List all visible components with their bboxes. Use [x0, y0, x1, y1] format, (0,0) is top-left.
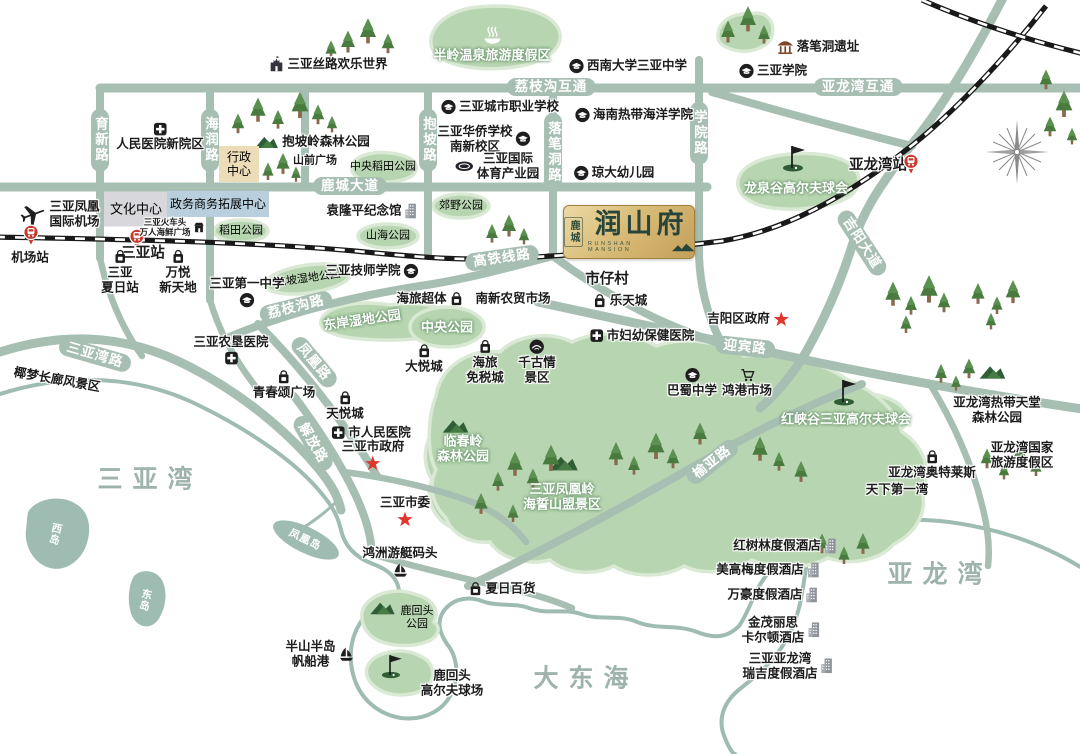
banling-hotspring-resort: 半岭温泉旅游度假区 [433, 25, 550, 62]
xiari-station: 三亚夏日站 [101, 249, 139, 295]
school-icon [684, 368, 699, 383]
intl-sports-industry-park: 三亚国际体育产业园 [455, 151, 540, 181]
building-icon [824, 538, 837, 555]
star-icon [365, 455, 381, 470]
phoenix-ridge-scenic-area: 三亚凤凰岭海誓山盟景区 [523, 482, 601, 513]
airport-station-badge [23, 225, 40, 246]
bag-icon [338, 391, 352, 406]
jiyang-district-gov: 吉阳区政府 [707, 312, 789, 327]
seafood-plaza: 三亚火车头万人海鲜广场 [139, 217, 204, 237]
map-canvas: 育新路海润路抱坡路落笔洞路学院路荔枝沟互通亚龙湾互通鹿城大道高铁线路荔枝沟路凤凰… [0, 0, 1080, 754]
school-icon [516, 132, 531, 147]
logo-subtitle: RUNSHAN MANSION [588, 241, 668, 253]
gov-business-center: 政务商务拓展中心 [167, 191, 269, 217]
building-icon [806, 587, 819, 604]
swu-sanya-middle-school: 西南大学三亚中学 [569, 59, 687, 74]
yemeng-corridor-scenic: 椰梦长廊风景区 [13, 365, 102, 395]
hospital-icon [224, 351, 238, 365]
hotspring-icon [480, 25, 504, 46]
longquangu-golf-club: 龙泉谷高尔夫球会 [744, 180, 848, 195]
linchunling-forest-park: 临春岭森林公园 [437, 434, 489, 465]
duty-free-city: 海旅免税城 [466, 339, 504, 385]
honggang-market: 鸿港市场 [722, 368, 772, 399]
luhuitou-golf-course: 鹿回头高尔夫球场 [421, 668, 484, 698]
hospital-icon [331, 426, 345, 440]
school-icon [575, 108, 590, 123]
labels-layer: 育新路海润路抱坡路落笔洞路学院路荔枝沟互通亚龙湾互通鹿城大道高铁线路荔枝沟路凤凰… [0, 0, 1080, 754]
station-icon [23, 225, 40, 246]
sanya-college: 三亚学院 [739, 64, 807, 79]
road-lizhigou-interchange: 荔枝沟互通 [507, 78, 596, 96]
yuanlongping-memorial: 袁隆平纪念馆 [326, 203, 417, 220]
star-icon [773, 312, 789, 327]
hotel-ritz-carlton: 金茂丽思卡尔顿酒店 [742, 615, 821, 645]
shanhai-park: 山海公园 [366, 230, 410, 243]
paddy-park: 稻田公园 [219, 225, 263, 238]
nanxin-market: 南新农贸市场 [475, 292, 550, 307]
baopoling-forest-park: 抱坡岭森林公园 [282, 135, 370, 150]
yalong-paradise-forest-park: 亚龙湾热带天堂森林公园 [953, 395, 1041, 425]
sail-icon [339, 646, 355, 662]
hongzhou-yacht-marina: 鸿洲游艇码头 [362, 546, 437, 578]
building-icon [405, 203, 418, 220]
road-lucheng-avenue: 鹿城大道 [313, 177, 387, 195]
school-icon [569, 59, 584, 74]
shop-icon [194, 222, 205, 233]
sea-yalong-bay: 亚龙湾 [887, 560, 992, 590]
hotel-mgm: 美高梅度假酒店 [716, 562, 820, 579]
sail-icon [392, 562, 408, 578]
logo-project-name: 润山府 [595, 211, 688, 238]
road-jiefang: 解放路 [290, 413, 335, 473]
shizai-village: 市仔村 [585, 271, 629, 288]
bag-icon [593, 294, 607, 309]
bag-icon [925, 450, 939, 465]
admin-center: 行政中心 [219, 146, 259, 182]
sanya-city-gov: 三亚市政府 [342, 440, 405, 471]
banshan-sailing-port: 半山半岛帆船港 [285, 639, 354, 669]
island-east: 东岛 [137, 587, 154, 612]
pavilion-icon [777, 40, 794, 55]
sea-dadonghai: 大东海 [533, 664, 638, 694]
overseas-chinese-school: 三亚华侨学校南新校区 [437, 124, 530, 154]
stadium-icon [455, 160, 474, 172]
country-park: 郊野公园 [439, 200, 483, 213]
central-paddy-park: 中央稻田公园 [350, 161, 416, 174]
island-phoenix: 凤凰岛 [287, 527, 323, 553]
road-baopo: 抱坡路 [419, 109, 437, 172]
hotel-st-regis: 三亚亚龙湾瑞吉度假酒店 [742, 651, 833, 681]
luhuitou-park: 鹿回头公园 [401, 605, 434, 631]
road-yuya: 榆亚路 [683, 437, 741, 488]
tianxia-first-bay: 天下第一湾 [866, 483, 929, 498]
building-icon [807, 562, 820, 579]
hospital-icon [590, 329, 604, 343]
hotel-mangrove: 红树林度假酒店 [733, 538, 837, 555]
school-icon [404, 264, 419, 279]
tianyue-city: 天悦城 [326, 391, 364, 422]
city-vocational-school: 三亚城市职业学校 [441, 100, 559, 115]
bag-icon [417, 344, 431, 359]
qiongda-kindergarten: 琼大幼儿园 [574, 166, 655, 181]
yalong-outlets: 亚龙湾奥特莱斯 [888, 450, 976, 481]
project-logo-plate: 鹿城 润山府 RUNSHAN MANSION [563, 205, 695, 259]
road-hsr-line: 高铁线路 [464, 244, 540, 272]
silk-road-happy-world: 三亚丝路欢乐世界 [268, 56, 387, 72]
sea-sanya-bay: 三亚湾 [97, 465, 202, 495]
renmin-hospital-new-campus: 人民医院新院区 [116, 122, 204, 152]
yalongwan-station-badge [903, 154, 920, 175]
hailv-supertown: 海旅超体 [396, 292, 463, 307]
bag-icon [277, 370, 291, 385]
airport-station-label: 机场站 [11, 251, 49, 266]
bag-icon [171, 249, 185, 264]
logo-district: 鹿城 [564, 217, 583, 247]
bag-icon [113, 249, 127, 264]
island-west: 西岛 [47, 521, 64, 546]
star-icon [397, 511, 413, 526]
road-yingbin: 迎宾路 [714, 335, 775, 359]
school-icon [574, 166, 589, 181]
school-icon [739, 64, 754, 79]
hotel-marriott: 万豪度假酒店 [727, 587, 818, 604]
xiari-department-store: 夏日百货 [468, 582, 535, 597]
sanya-city-committee: 三亚市委 [380, 496, 430, 527]
school-icon [441, 100, 456, 115]
building-icon [821, 658, 834, 675]
agri-reclamation-hospital: 三亚农垦医院 [193, 335, 268, 365]
school-icon [239, 292, 254, 307]
bashu-middle-school: 巴蜀中学 [667, 368, 717, 399]
bag-icon [478, 339, 492, 354]
plane-icon [20, 201, 46, 227]
bag-icon [450, 292, 464, 307]
bag-icon [468, 582, 482, 597]
cart-icon [739, 368, 754, 383]
road-yuxin: 育新路 [91, 109, 109, 172]
city-peoples-hospital: 市人民医院 [331, 426, 411, 441]
qianguqing-scenic: 千古情景区 [518, 339, 556, 385]
dayue-city: 大悦城 [405, 344, 443, 375]
road-yalongwan-interchange: 亚龙湾互通 [814, 78, 903, 96]
hongxiagu-golf-club: 红峡谷三亚高尔夫球会 [781, 411, 911, 426]
skills-college: 三亚技师学院 [325, 264, 418, 279]
yalong-national-resort: 亚龙湾国家旅游度假区 [991, 440, 1054, 470]
wanyue-new-world: 万悦新天地 [159, 249, 197, 295]
theater-icon [529, 339, 544, 354]
shanqian-square: 山前广场 [293, 155, 337, 168]
road-sanyawan: 三亚湾路 [57, 336, 133, 374]
qingchunsong-square: 青春颂广场 [253, 370, 316, 401]
sanya-first-middle-school: 三亚第一中学 [209, 277, 284, 308]
central-park: 中央公园 [421, 319, 473, 334]
road-jiyang-avenue: 吉阳大道 [834, 207, 889, 279]
mountain-icon [672, 243, 695, 252]
building-icon [807, 622, 820, 639]
yalongwan-station-label: 亚龙湾站 [849, 157, 907, 174]
road-luobidong: 落笔洞路 [544, 113, 562, 191]
dongan-wetland-park: 东岸湿地公园 [322, 307, 401, 333]
hospital-icon [153, 122, 167, 136]
maternal-child-hospital: 市妇幼保健医院 [590, 329, 695, 344]
castle-icon [268, 56, 284, 72]
hainan-tropical-ocean-university: 海南热带海洋学院 [575, 108, 693, 123]
luobidong-ruins: 落笔洞遗址 [777, 40, 860, 55]
station-icon [903, 154, 920, 175]
letian-city: 乐天城 [593, 294, 648, 309]
